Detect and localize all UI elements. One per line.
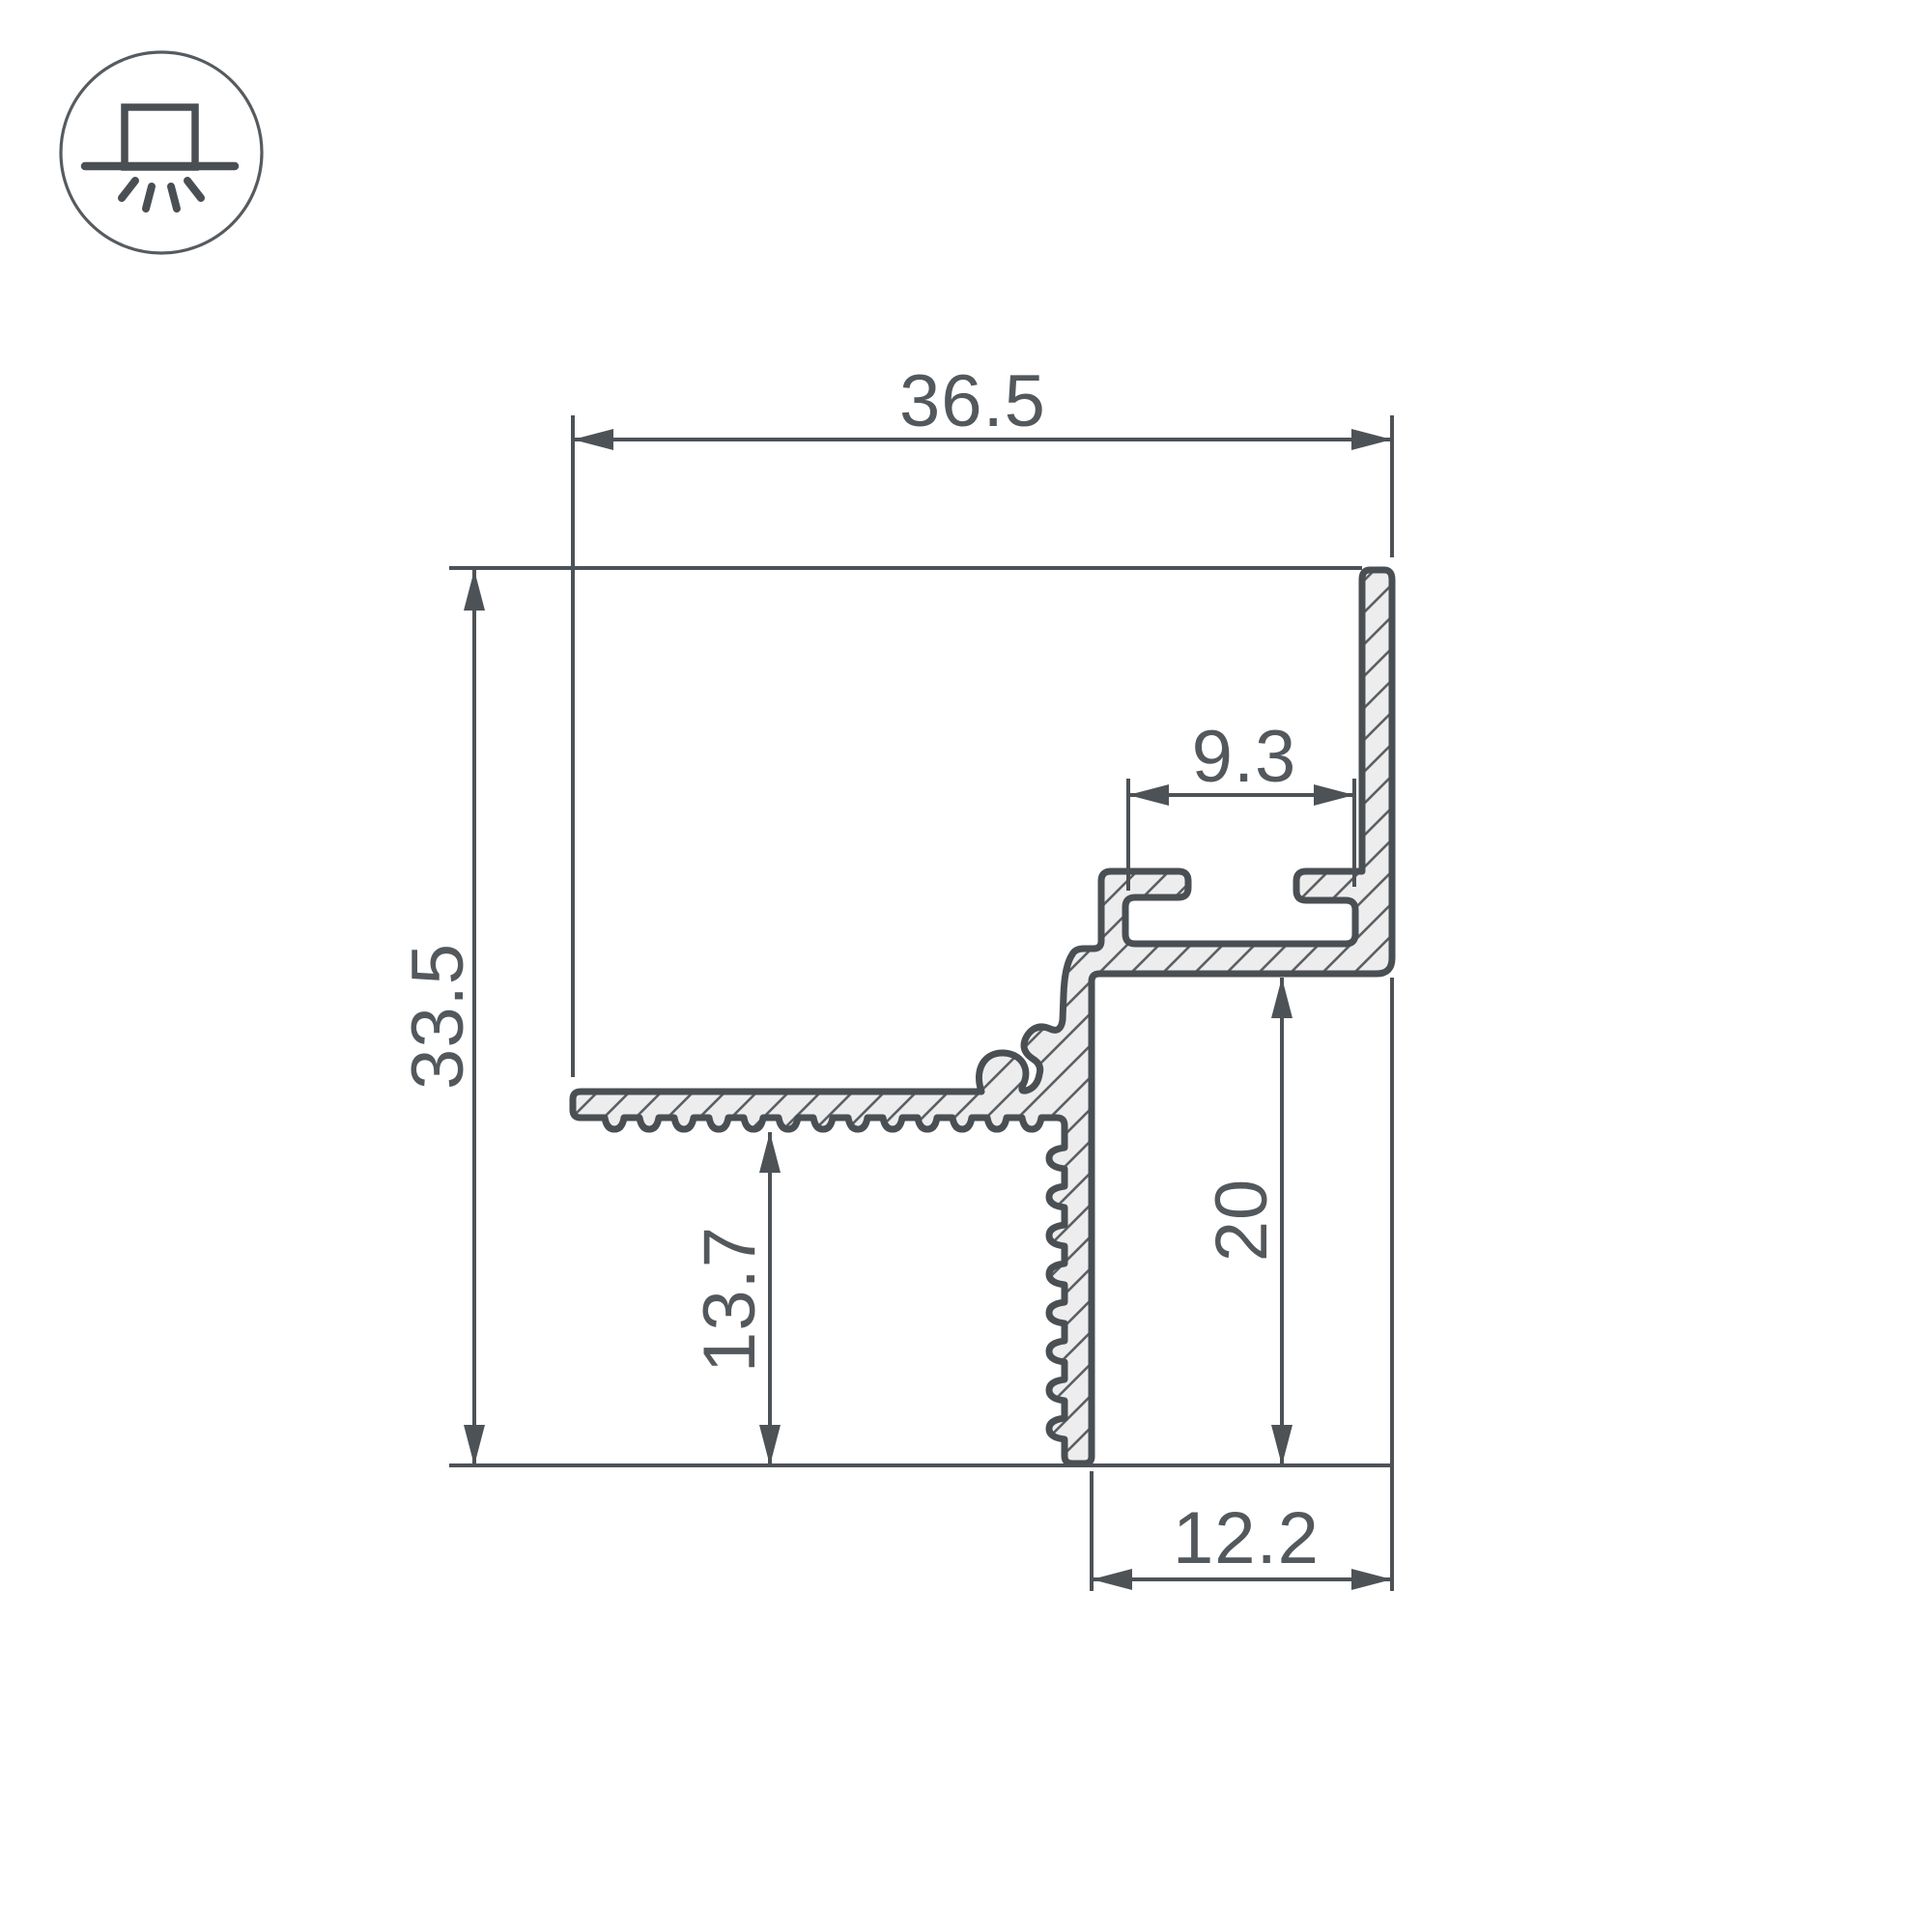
- dimension-label: 12.2: [1173, 1497, 1320, 1579]
- arrowhead-down: [759, 1425, 781, 1465]
- dimension-label: 20: [1201, 1179, 1283, 1263]
- arrowhead-right: [1351, 1569, 1392, 1590]
- luminaire-box-icon: [125, 107, 195, 167]
- dimension-overall-width: 36.5: [573, 360, 1392, 557]
- arrowhead-down: [464, 1425, 485, 1465]
- arrowhead-left: [573, 429, 613, 450]
- arrowhead-left: [1092, 1569, 1132, 1590]
- dimension-channel-width: 9.3: [1128, 716, 1354, 891]
- arrowhead-up: [759, 1132, 781, 1173]
- drawing-canvas: 36.5 33.5 9.3 20 13.7 12.2: [0, 0, 1932, 1932]
- arrowhead-left: [1128, 784, 1169, 806]
- dimension-label: 36.5: [899, 360, 1046, 442]
- dimension-overall-height: 33.5: [397, 570, 485, 1465]
- recessed-ceiling-light-icon: [61, 52, 262, 253]
- arrowhead-down: [1271, 1425, 1293, 1465]
- light-rays-icon: [122, 181, 201, 209]
- dimension-flange-drop: 13.7: [689, 1132, 781, 1465]
- icon-circle: [61, 52, 262, 253]
- dimension-bottom-width: 12.2: [1092, 978, 1392, 1591]
- dimension-label: 33.5: [397, 943, 479, 1090]
- arrowhead-up: [1271, 978, 1293, 1018]
- dimension-label: 13.7: [689, 1226, 771, 1373]
- dimension-drop-height: 20: [1201, 978, 1293, 1465]
- arrowhead-right: [1351, 429, 1392, 450]
- arrowhead-right: [1314, 784, 1354, 806]
- dimension-label: 9.3: [1192, 716, 1297, 798]
- arrowhead-up: [464, 570, 485, 611]
